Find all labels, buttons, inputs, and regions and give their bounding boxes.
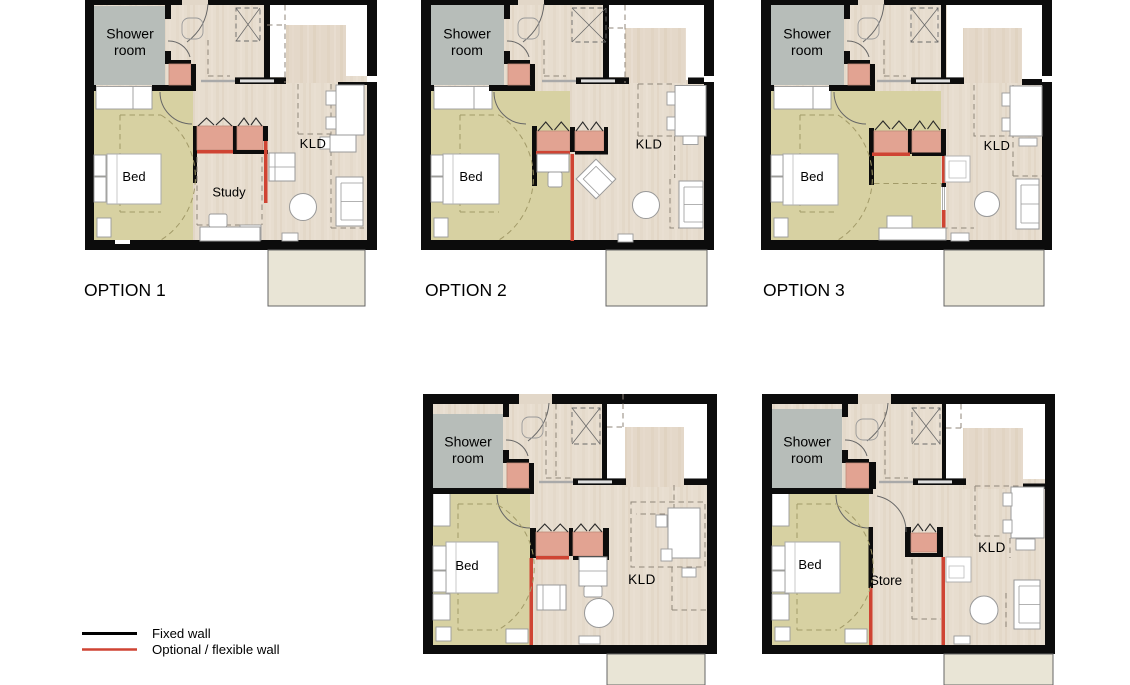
svg-text:OPTION 2: OPTION 2 xyxy=(425,280,507,300)
svg-text:Shower: Shower xyxy=(783,434,831,450)
svg-text:Shower: Shower xyxy=(783,26,831,42)
svg-text:room: room xyxy=(114,42,146,58)
svg-text:room: room xyxy=(791,42,823,58)
svg-text:Bed: Bed xyxy=(122,169,145,184)
svg-text:OPTION 1: OPTION 1 xyxy=(84,280,166,300)
svg-text:Study: Study xyxy=(212,185,246,200)
svg-text:Bed: Bed xyxy=(800,169,823,184)
svg-text:Fixed wall: Fixed wall xyxy=(152,626,211,641)
svg-text:room: room xyxy=(452,450,484,466)
svg-text:Shower: Shower xyxy=(443,26,491,42)
svg-text:room: room xyxy=(791,450,823,466)
svg-text:KLD: KLD xyxy=(984,138,1011,153)
svg-text:Optional / flexible wall: Optional / flexible wall xyxy=(152,642,280,657)
svg-text:KLD: KLD xyxy=(636,137,663,152)
svg-text:Bed: Bed xyxy=(459,169,482,184)
svg-text:Shower: Shower xyxy=(444,434,492,450)
svg-text:KLD: KLD xyxy=(628,572,656,587)
svg-text:Store: Store xyxy=(870,573,902,588)
svg-text:KLD: KLD xyxy=(300,136,327,151)
svg-text:Bed: Bed xyxy=(455,558,478,573)
svg-text:OPTION 3: OPTION 3 xyxy=(763,280,845,300)
svg-text:KLD: KLD xyxy=(978,540,1006,555)
svg-text:Shower: Shower xyxy=(106,26,154,42)
svg-text:room: room xyxy=(451,42,483,58)
svg-text:Bed: Bed xyxy=(798,557,821,572)
